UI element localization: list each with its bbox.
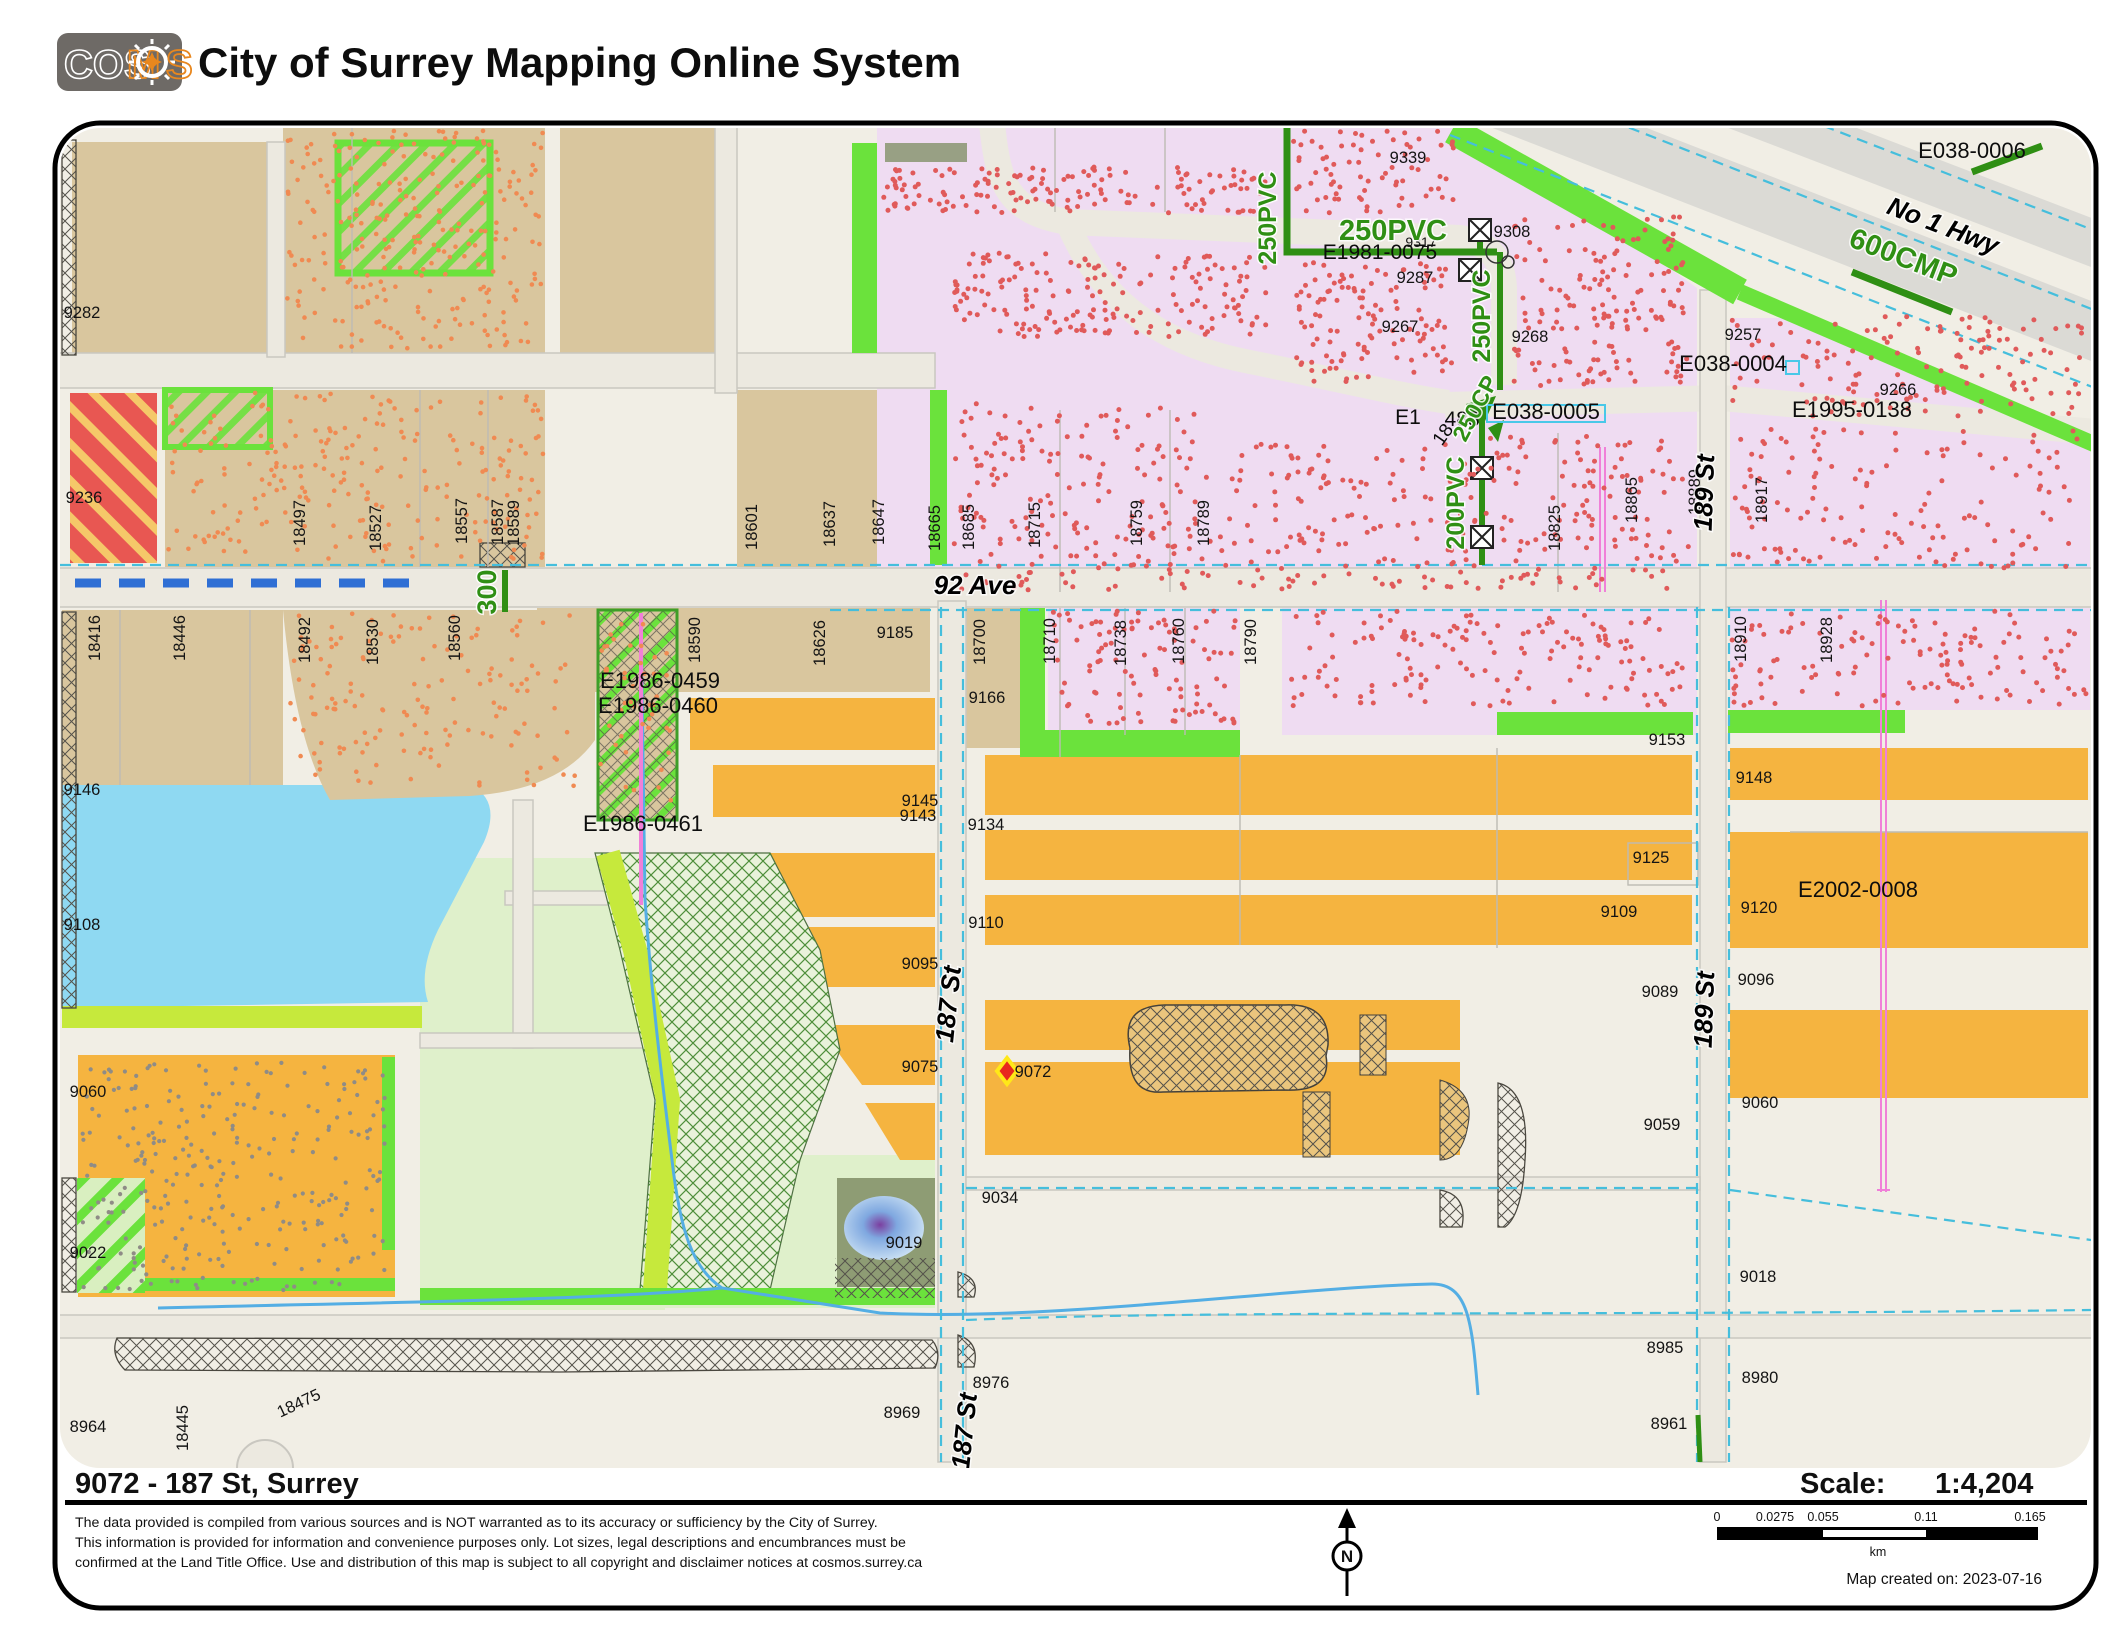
label-p-18445: 18445: [174, 1405, 192, 1451]
page-title: City of Surrey Mapping Online System: [198, 39, 961, 86]
scalebar-tick: 0.11: [1914, 1510, 1937, 1524]
label-g-250PVC: 250PVC: [1468, 269, 1496, 362]
label-p-18601: 18601: [743, 504, 761, 550]
label-p-9018: 9018: [1740, 1268, 1777, 1286]
label-p-18560: 18560: [446, 615, 464, 661]
label-p-9143: 9143: [900, 807, 937, 825]
label-p-18446: 18446: [171, 615, 189, 661]
label-p-18715: 18715: [1026, 502, 1044, 548]
label-p-18685: 18685: [960, 504, 978, 550]
label-p-18917: 18917: [1753, 477, 1771, 523]
label-e-E038-0005: E038-0005: [1492, 399, 1600, 424]
label-e-E038-0004: E038-0004: [1679, 351, 1787, 376]
scalebar-tick: 0.055: [1807, 1510, 1838, 1524]
label-p-9166: 9166: [969, 689, 1006, 707]
disclaimer-line-1: The data provided is compiled from vario…: [75, 1515, 878, 1531]
green-hatched-parcel-small: [165, 390, 270, 447]
footer-divider: [65, 1500, 2087, 1505]
label-p-18416: 18416: [86, 615, 104, 661]
label-p-9034: 9034: [982, 1189, 1019, 1207]
label-p-8985: 8985: [1647, 1339, 1684, 1357]
label-p-9282: 9282: [64, 304, 101, 322]
creek-hatch-band: [115, 1338, 938, 1372]
label-g-200PVC: 200PVC: [1442, 456, 1470, 549]
scalebar-tick: 0.165: [2014, 1510, 2045, 1524]
label-p-9146: 9146: [64, 781, 101, 799]
label-p-9153: 9153: [1649, 731, 1686, 749]
label-p-9096: 9096: [1738, 971, 1775, 989]
label-p-9148: 9148: [1736, 769, 1773, 787]
label-p-9108: 9108: [64, 916, 101, 934]
label-p-9308: 9308: [1494, 223, 1531, 241]
map-created-date: Map created on: 2023-07-16: [1846, 1571, 2042, 1588]
label-p-18710: 18710: [1041, 618, 1059, 664]
label-e-E1986-0460: E1986-0460: [598, 693, 718, 718]
green-striped-parcel-9022: [77, 1178, 145, 1293]
label-p-9072: 9072: [1015, 1063, 1052, 1081]
label-p-9089: 9089: [1642, 983, 1679, 1001]
label-e-E2002-0008: E2002-0008: [1798, 877, 1918, 902]
label-p-18759: 18759: [1128, 500, 1146, 546]
label-e-E1986-0461: E1986-0461: [583, 811, 703, 836]
label-p-9236: 9236: [66, 489, 103, 507]
label-p-9339: 9339: [1390, 149, 1427, 167]
disclaimer: The data provided is compiled from vario…: [75, 1515, 922, 1571]
label-e-E1: E1: [1395, 406, 1421, 429]
label-p-9268: 9268: [1512, 328, 1549, 346]
label-p-18647: 18647: [870, 499, 888, 545]
label-p-9060: 9060: [1742, 1094, 1779, 1112]
scalebar-tick: 0: [1714, 1510, 1721, 1524]
label-p-18497: 18497: [291, 500, 309, 546]
red-striped-parcel-9236: [70, 393, 157, 563]
label-p-8976: 8976: [973, 1374, 1010, 1392]
label-p-9022: 9022: [70, 1244, 107, 1262]
lake-shore-strip: [62, 1006, 422, 1028]
label-p-9257: 9257: [1725, 326, 1762, 344]
scale-label: Scale:: [1800, 1468, 1885, 1500]
north-label: N: [1341, 1547, 1353, 1566]
label-p-18665: 18665: [926, 505, 944, 551]
label-p-18928: 18928: [1818, 617, 1836, 663]
label-e-E038-0006: E038-0006: [1918, 138, 2026, 163]
label-p-9267: 9267: [1382, 318, 1419, 336]
label-p-18700: 18700: [971, 619, 989, 665]
label-g-300: 300: [472, 569, 502, 614]
label-p-18530: 18530: [364, 619, 382, 665]
label-p-18589: 18589: [505, 500, 523, 546]
label-p-9095: 9095: [902, 955, 939, 973]
label-e-E1995-0138: E1995-0138: [1792, 397, 1912, 422]
label-p-8964: 8964: [70, 1418, 107, 1436]
label-p-18789: 18789: [1195, 500, 1213, 546]
header: COS M S City of Surrey Mapping Online Sy…: [57, 33, 961, 91]
label-p-18865: 18865: [1623, 477, 1641, 523]
label-e-E1986-0459: E1986-0459: [600, 668, 720, 693]
label-p-9185: 9185: [877, 624, 914, 642]
scalebar-unit: km: [1870, 1545, 1887, 1559]
label-p-18637: 18637: [821, 501, 839, 547]
address-title: 9072 - 187 St, Surrey: [75, 1468, 359, 1500]
label-s-92 Ave: 92 Ave: [934, 570, 1017, 600]
label-p-18557: 18557: [453, 498, 471, 544]
cosmos-map-page: COS M S City of Surrey Mapping Online Sy…: [0, 0, 2112, 1632]
label-s-189 St: 189 St: [1688, 453, 1721, 532]
label-p-9109: 9109: [1601, 903, 1638, 921]
label-p-8969: 8969: [884, 1404, 921, 1422]
disclaimer-line-2: This information is provided for informa…: [75, 1535, 906, 1551]
label-p-18492: 18492: [296, 617, 314, 663]
label-p-9075: 9075: [902, 1058, 939, 1076]
label-p-18590: 18590: [686, 617, 704, 663]
label-p-9110: 9110: [968, 914, 1003, 932]
label-p-18910: 18910: [1732, 616, 1750, 662]
label-p-18790: 18790: [1242, 619, 1260, 665]
label-g-250PVC: 250PVC: [1254, 171, 1282, 264]
map-canvas[interactable]: COS M S City of Surrey Mapping Online Sy…: [0, 0, 2112, 1632]
label-p-18738: 18738: [1112, 620, 1130, 666]
label-p-8980: 8980: [1742, 1369, 1779, 1387]
map-content: 9282923618497185271855718587185891860118…: [58, 48, 2112, 1496]
label-p-9134: 9134: [968, 816, 1005, 834]
label-p-9120: 9120: [1741, 899, 1778, 917]
scale-value: 1:4,204: [1935, 1468, 2033, 1500]
label-p-9287: 9287: [1397, 269, 1434, 287]
label-p-18760: 18760: [1170, 618, 1188, 664]
olive-strip: [885, 143, 967, 162]
label-p-18825: 18825: [1546, 505, 1564, 551]
disclaimer-line-3: confirmed at the Land Title Office. Use …: [75, 1555, 922, 1571]
label-p-9060: 9060: [70, 1083, 107, 1101]
label-p-9019: 9019: [886, 1234, 923, 1252]
label-p-9125: 9125: [1633, 849, 1670, 867]
logo-s: S: [166, 43, 193, 87]
label-g-250PVC: 250PVC: [1339, 215, 1447, 247]
label-p-8961: 8961: [1651, 1415, 1688, 1433]
label-s-189 St: 189 St: [1688, 970, 1721, 1049]
label-p-18626: 18626: [811, 620, 829, 666]
label-p-9059: 9059: [1644, 1116, 1681, 1134]
scalebar-tick: 0.0275: [1756, 1510, 1794, 1524]
label-p-18527: 18527: [367, 505, 385, 551]
